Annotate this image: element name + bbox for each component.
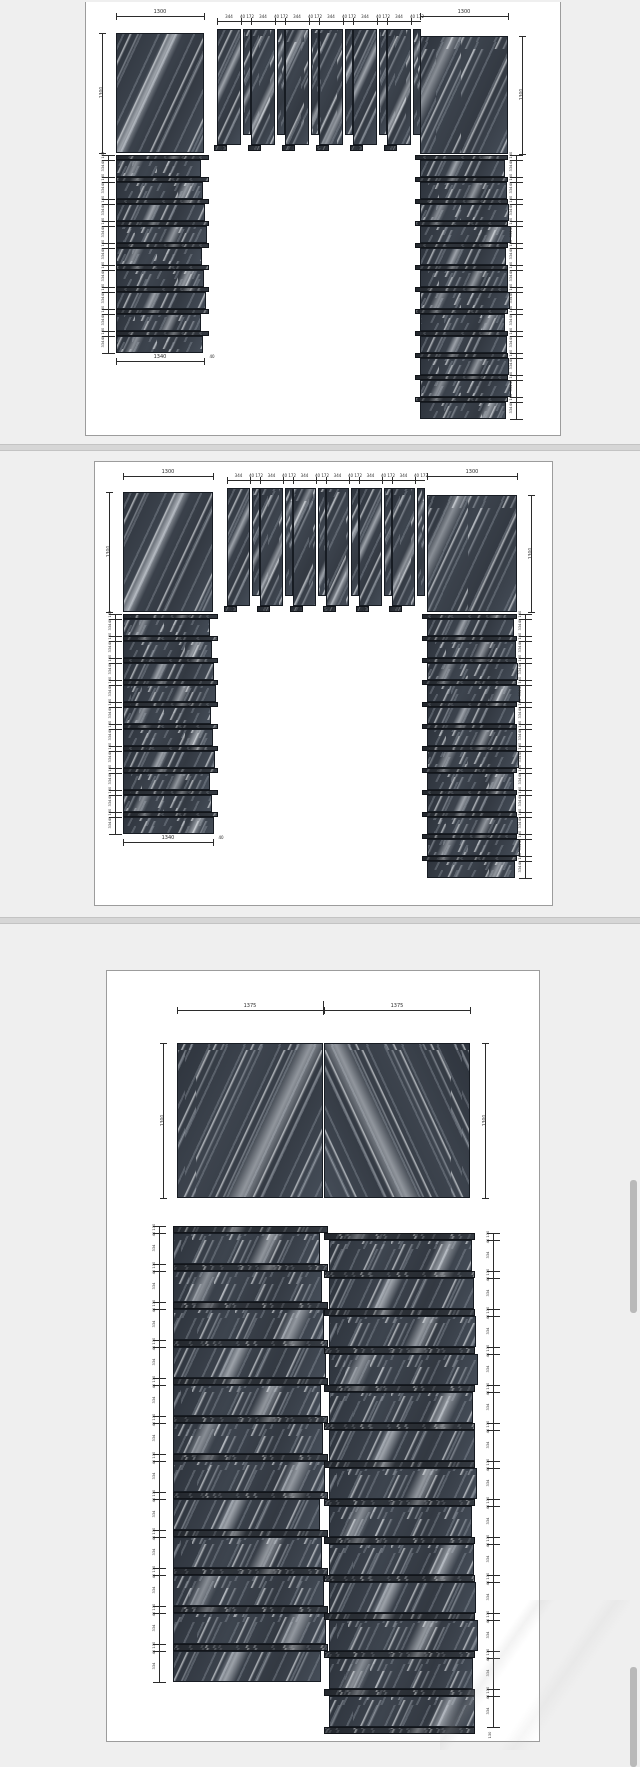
marble-slab (277, 29, 285, 135)
marble-slab (427, 773, 514, 790)
dimension-tick (470, 1007, 471, 1014)
dimension-label: 334 (152, 1428, 156, 1448)
dimension-tick (415, 477, 416, 484)
marble-slab (326, 488, 349, 606)
dimension-label: 40 130 (486, 1607, 490, 1627)
dimension-label: 1300 (483, 1107, 488, 1132)
dimension-tick (508, 13, 509, 20)
marble-riser-strip (173, 1568, 328, 1575)
marble-riser-strip (324, 1347, 475, 1354)
dimension-tick (326, 477, 327, 484)
dimension-label: 40 130 (152, 1448, 156, 1468)
marble-slab (123, 641, 212, 658)
dimension-label: 334 (509, 400, 513, 420)
marble-slab (329, 1544, 474, 1575)
marble-slab (293, 488, 316, 606)
dimension-line (108, 155, 109, 353)
marble-slab (384, 488, 392, 596)
marble-slab (329, 1278, 474, 1309)
marble-slab (177, 1043, 323, 1198)
dimension-label: 40 130 (152, 1486, 156, 1506)
marble-riser-strip (324, 1613, 475, 1620)
marble-slab (251, 29, 275, 145)
dimension-label: 334 (152, 1276, 156, 1296)
marble-slab (285, 29, 309, 145)
marble-slab (420, 380, 511, 397)
marble-slab (173, 1309, 324, 1340)
marble-slat-foot (282, 145, 295, 151)
dimension-tick (343, 18, 344, 25)
marble-slat-foot (290, 606, 303, 612)
dimension-label: 40 130 (152, 1372, 156, 1392)
marble-riser-strip (173, 1606, 328, 1613)
marble-slab (123, 663, 214, 680)
dimension-label: 334 (152, 1390, 156, 1410)
marble-slab (329, 1620, 478, 1651)
dimension-label: 40 130 (152, 1562, 156, 1582)
dimension-tick (285, 18, 286, 25)
dimension-tick (519, 878, 532, 879)
marble-slab (427, 495, 517, 612)
marble-slab (420, 226, 511, 243)
dimension-label: 1300 (458, 470, 486, 475)
marble-slab (420, 248, 506, 265)
marble-slab (319, 29, 343, 145)
marble-slab (116, 248, 202, 265)
marble-slab (311, 29, 319, 135)
dimension-tick (482, 1043, 489, 1044)
marble-riser-strip (324, 1499, 475, 1506)
marble-riser-strip (173, 1302, 328, 1309)
marble-slab (116, 270, 204, 287)
dimension-label: 1300 (100, 80, 105, 105)
marble-slab (173, 1423, 323, 1454)
dimension-tick (204, 358, 205, 365)
dimension-label: 40 130 (486, 1493, 490, 1513)
marble-slab (329, 1658, 473, 1689)
marble-slab (427, 663, 518, 680)
marble-slab (392, 488, 415, 606)
marble-riser-strip (173, 1226, 328, 1233)
marble-riser-strip (324, 1233, 475, 1240)
dimension-label: 334 (152, 1542, 156, 1562)
marble-slab (329, 1240, 472, 1271)
dimension-tick (153, 1682, 166, 1683)
marble-slab (217, 29, 241, 145)
dimension-label: 334 (486, 1625, 490, 1645)
marble-slab (116, 314, 201, 331)
dimension-tick (251, 18, 252, 25)
dimension-label: 40 130 (486, 1379, 490, 1399)
marble-slab (123, 773, 210, 790)
marble-slab (173, 1499, 320, 1530)
dimension-tick (260, 477, 261, 484)
dimension-label: 40 172 (410, 474, 432, 478)
marble-slab (173, 1575, 324, 1606)
dimension-tick (116, 13, 117, 20)
drawing-sheet-2: 130013001300130040 13033440 13033440 130… (94, 461, 553, 906)
dimension-label: 1340 (154, 836, 182, 841)
dimension-label: 40 130 (152, 1524, 156, 1544)
marble-slab (387, 29, 411, 145)
marble-slat-foot (316, 145, 329, 151)
marble-riser-strip (324, 1461, 475, 1468)
marble-slab (413, 29, 421, 135)
dimension-line (493, 1233, 494, 1727)
marble-slab (123, 492, 213, 612)
marble-slab (173, 1651, 321, 1682)
dimension-label: 334 (486, 1587, 490, 1607)
dimension-label: 334 (101, 334, 105, 354)
marble-slat-foot (350, 145, 363, 151)
marble-slab (427, 641, 516, 658)
marble-slab (329, 1468, 477, 1499)
dimension-tick (510, 419, 523, 420)
dimension-tick (217, 18, 218, 25)
marble-slab (243, 29, 251, 135)
marble-riser-strip (324, 1727, 475, 1734)
dimension-label: 130 (488, 1725, 492, 1745)
marble-slab (329, 1430, 475, 1461)
dimension-label: 40 130 (152, 1220, 156, 1240)
marble-riser-strip (173, 1340, 328, 1347)
marble-riser-strip (173, 1454, 328, 1461)
dimension-tick (99, 33, 106, 34)
dimension-label: 1300 (161, 1107, 166, 1132)
dimension-label: 334 (486, 1473, 490, 1493)
dimension-label: 334 (152, 1504, 156, 1524)
dimension-tick (353, 18, 354, 25)
document-viewer: { "viewer": { "description": "stone slab… (0, 0, 640, 1767)
dimension-tick (116, 358, 117, 365)
dimension-line (116, 361, 204, 362)
marble-riser-strip (173, 1416, 328, 1423)
dimension-line (324, 1010, 470, 1011)
dimension-label: 1375 (383, 1004, 411, 1009)
marble-riser-strip (173, 1492, 328, 1499)
dimension-label: 334 (486, 1283, 490, 1303)
marble-slab (420, 36, 508, 154)
marble-slat-foot (389, 606, 402, 612)
dimension-line (427, 476, 517, 477)
marble-slab (260, 488, 283, 606)
marble-slat-foot (257, 606, 270, 612)
dimension-label: 334 (152, 1352, 156, 1372)
marble-riser-strip (324, 1651, 475, 1658)
marble-riser-strip (173, 1644, 328, 1651)
marble-slab (173, 1613, 326, 1644)
dimension-label: 1340 (146, 355, 174, 360)
dimension-tick (519, 36, 526, 37)
dimension-tick (517, 473, 518, 480)
drawing-sheet-3: 137513751300130040 13033440 13033440 130… (106, 970, 540, 1742)
marble-slab (420, 182, 507, 199)
marble-slab (420, 160, 505, 177)
marble-slab-bookmatched (324, 1043, 470, 1198)
dimension-label: 40 130 (486, 1531, 490, 1551)
dimension-tick (160, 1198, 167, 1199)
marble-slat-foot (323, 606, 336, 612)
dimension-tick (109, 834, 122, 835)
dimension-tick (204, 13, 205, 20)
dimension-label: 1375 (236, 1004, 264, 1009)
dimension-label: 334 (486, 1511, 490, 1531)
dimension-tick (316, 477, 317, 484)
dimension-tick (528, 612, 535, 613)
dimension-tick (213, 839, 214, 846)
marble-slab (329, 1506, 472, 1537)
marble-slab (420, 270, 508, 287)
marble-slat-foot (214, 145, 227, 151)
dimension-tick (359, 477, 360, 484)
marble-slab (173, 1347, 326, 1378)
marble-riser-strip (173, 1530, 328, 1537)
marble-riser-strip (324, 1575, 475, 1582)
marble-slab (329, 1582, 476, 1613)
marble-slab (123, 817, 214, 834)
dimension-tick (387, 18, 388, 25)
marble-slab (420, 292, 510, 309)
page-divider (0, 444, 640, 451)
dimension-label: 40 130 (152, 1296, 156, 1316)
dimension-label: 40 130 (486, 1455, 490, 1475)
drawing-sheet-1: 130013001300130040 13033440 13033440 130… (85, 2, 561, 436)
marble-slat-foot (224, 606, 237, 612)
marble-slab (427, 707, 515, 724)
dimension-label: 40 130 (152, 1600, 156, 1620)
marble-riser-strip (173, 1378, 328, 1385)
marble-slab (123, 795, 212, 812)
dimension-line (116, 16, 204, 17)
marble-slab (173, 1461, 325, 1492)
marble-slab (329, 1392, 473, 1423)
dimension-tick (323, 1001, 324, 1015)
marble-slab (359, 488, 382, 606)
dimension-label: 1300 (154, 470, 182, 475)
marble-slab (227, 488, 250, 606)
marble-slab (252, 488, 260, 596)
dimension-tick (213, 473, 214, 480)
marble-slab (427, 729, 517, 746)
marble-slab (123, 685, 216, 702)
marble-riser-strip (324, 1537, 475, 1544)
dimension-tick (324, 1007, 325, 1014)
marble-slab (427, 619, 514, 636)
dimension-label: 40 130 (152, 1334, 156, 1354)
marble-slab (420, 358, 509, 375)
dimension-label: 40 130 (486, 1227, 490, 1247)
marble-slab (420, 336, 507, 353)
marble-slab (116, 204, 205, 221)
marble-slab (427, 685, 520, 702)
dimension-tick (382, 477, 383, 484)
dimension-tick (482, 1198, 489, 1199)
dimension-label: 334 (486, 1321, 490, 1341)
marble-slab (116, 336, 203, 353)
dimension-tick (349, 477, 350, 484)
marble-slab (427, 751, 519, 768)
marble-slab (116, 226, 207, 243)
dimension-label: 334 (486, 1663, 490, 1683)
marble-riser-strip (324, 1309, 475, 1316)
marble-slab (427, 861, 515, 878)
dimension-label: 1300 (146, 10, 174, 15)
dimension-label: 40 130 (486, 1265, 490, 1285)
marble-slab (379, 29, 387, 135)
page-divider (0, 917, 640, 924)
marble-slab (351, 488, 359, 596)
marble-slab (285, 488, 293, 596)
marble-slab (123, 751, 215, 768)
dimension-label: 334 (152, 1656, 156, 1676)
dimension-tick (250, 477, 251, 484)
marble-slat-foot (384, 145, 397, 151)
dimension-label: 40 130 (486, 1417, 490, 1437)
marble-riser-strip (324, 1271, 475, 1278)
dimension-label: 40 (206, 355, 218, 359)
marble-slab (329, 1316, 476, 1347)
dimension-label: 40 130 (152, 1410, 156, 1430)
marble-riser-strip (173, 1264, 328, 1271)
marble-slab (116, 182, 203, 199)
marble-slab (173, 1537, 322, 1568)
marble-slat-foot (356, 606, 369, 612)
dimension-tick (160, 1043, 167, 1044)
dimension-label: 334 (152, 1466, 156, 1486)
marble-slab (123, 619, 210, 636)
dimension-label: 40 130 (486, 1683, 490, 1703)
dimension-tick (177, 1007, 178, 1014)
marble-slab (123, 707, 211, 724)
marble-slab (420, 204, 509, 221)
dimension-tick (411, 18, 412, 25)
dimension-tick (309, 18, 310, 25)
marble-slab (173, 1233, 320, 1264)
dimension-tick (123, 473, 124, 480)
dimension-tick (241, 18, 242, 25)
dimension-tick (377, 18, 378, 25)
dimension-label: 40 130 (486, 1645, 490, 1665)
dimension-label: 40 130 (486, 1341, 490, 1361)
marble-slab (123, 729, 213, 746)
dimension-tick (319, 18, 320, 25)
marble-slab (116, 292, 206, 309)
dimension-label: 334 (518, 859, 522, 879)
dimension-label: 40 130 (152, 1638, 156, 1658)
scrollbar-thumb[interactable] (630, 1667, 637, 1767)
dimension-label: 334 (486, 1359, 490, 1379)
dimension-label: 334 (486, 1549, 490, 1569)
marble-slab (173, 1271, 322, 1302)
dimension-label: 40 130 (486, 1303, 490, 1323)
dimension-line (420, 16, 508, 17)
scrollbar-thumb[interactable] (630, 1180, 637, 1313)
dimension-tick (392, 477, 393, 484)
marble-slab (417, 488, 425, 596)
dimension-label: 40 130 (486, 1569, 490, 1589)
dimension-tick (102, 353, 115, 354)
dimension-label: 334 (152, 1618, 156, 1638)
marble-riser-strip (324, 1385, 475, 1392)
dimension-tick (123, 839, 124, 846)
marble-slat-foot (248, 145, 261, 151)
dimension-line (177, 1010, 323, 1011)
marble-slab (116, 33, 204, 153)
dimension-label: 40 172 (406, 15, 428, 19)
dimension-label: 334 (486, 1435, 490, 1455)
dimension-label: 334 (486, 1245, 490, 1265)
marble-riser-strip (324, 1423, 475, 1430)
dimension-label: 1300 (529, 540, 534, 565)
marble-slab (173, 1385, 321, 1416)
dimension-label: 40 130 (152, 1258, 156, 1278)
dimension-label: 1300 (107, 539, 112, 564)
dimension-tick (528, 495, 535, 496)
dimension-label: 1300 (450, 10, 478, 15)
marble-slab (116, 160, 201, 177)
marble-slab (318, 488, 326, 596)
dimension-tick (106, 492, 113, 493)
dimension-label: 334 (152, 1314, 156, 1334)
dimension-label: 40 (215, 836, 227, 840)
marble-slab (353, 29, 377, 145)
marble-riser-strip (324, 1689, 475, 1696)
marble-slab (427, 839, 520, 856)
marble-slab (329, 1354, 478, 1385)
marble-slab (427, 817, 518, 834)
dimension-label: 334 (486, 1397, 490, 1417)
marble-slab (420, 314, 505, 331)
dimension-label: 334 (486, 1701, 490, 1721)
dimension-label: 334 (152, 1580, 156, 1600)
marble-slab (427, 795, 516, 812)
dimension-tick (283, 477, 284, 484)
dimension-tick (275, 18, 276, 25)
dimension-line (123, 476, 213, 477)
marble-slab (329, 1696, 475, 1727)
dimension-label: 334 (152, 1238, 156, 1258)
dimension-tick (227, 477, 228, 484)
dimension-line (123, 842, 213, 843)
dimension-label: 1300 (520, 82, 525, 107)
dimension-tick (293, 477, 294, 484)
marble-slab (420, 402, 506, 419)
marble-slab (345, 29, 353, 135)
dimension-label: 334 (108, 815, 112, 835)
